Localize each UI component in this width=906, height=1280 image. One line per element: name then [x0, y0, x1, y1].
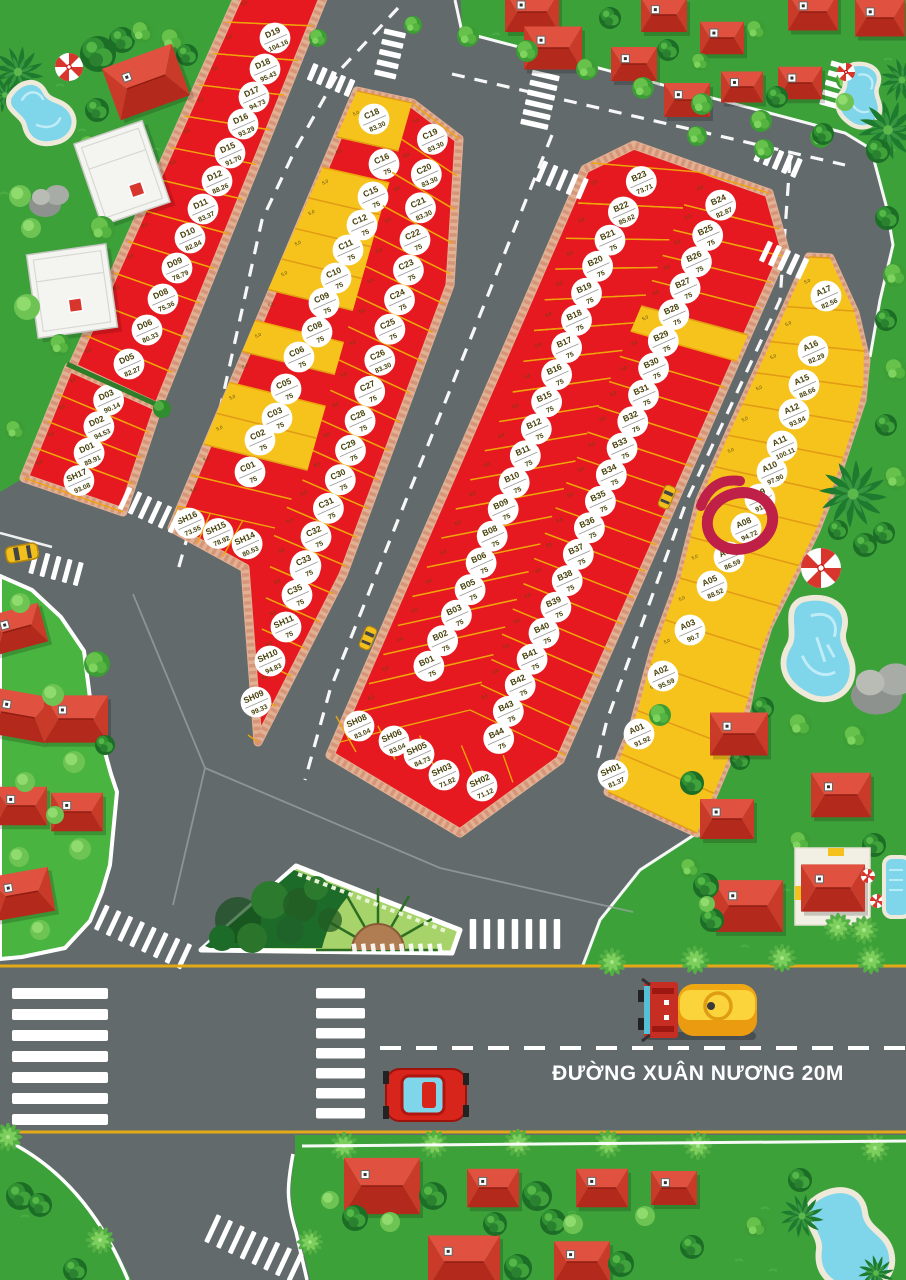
svg-text:ĐƯỜNG XUÂN NƯƠNG 20M: ĐƯỜNG XUÂN NƯƠNG 20M	[552, 1061, 844, 1085]
